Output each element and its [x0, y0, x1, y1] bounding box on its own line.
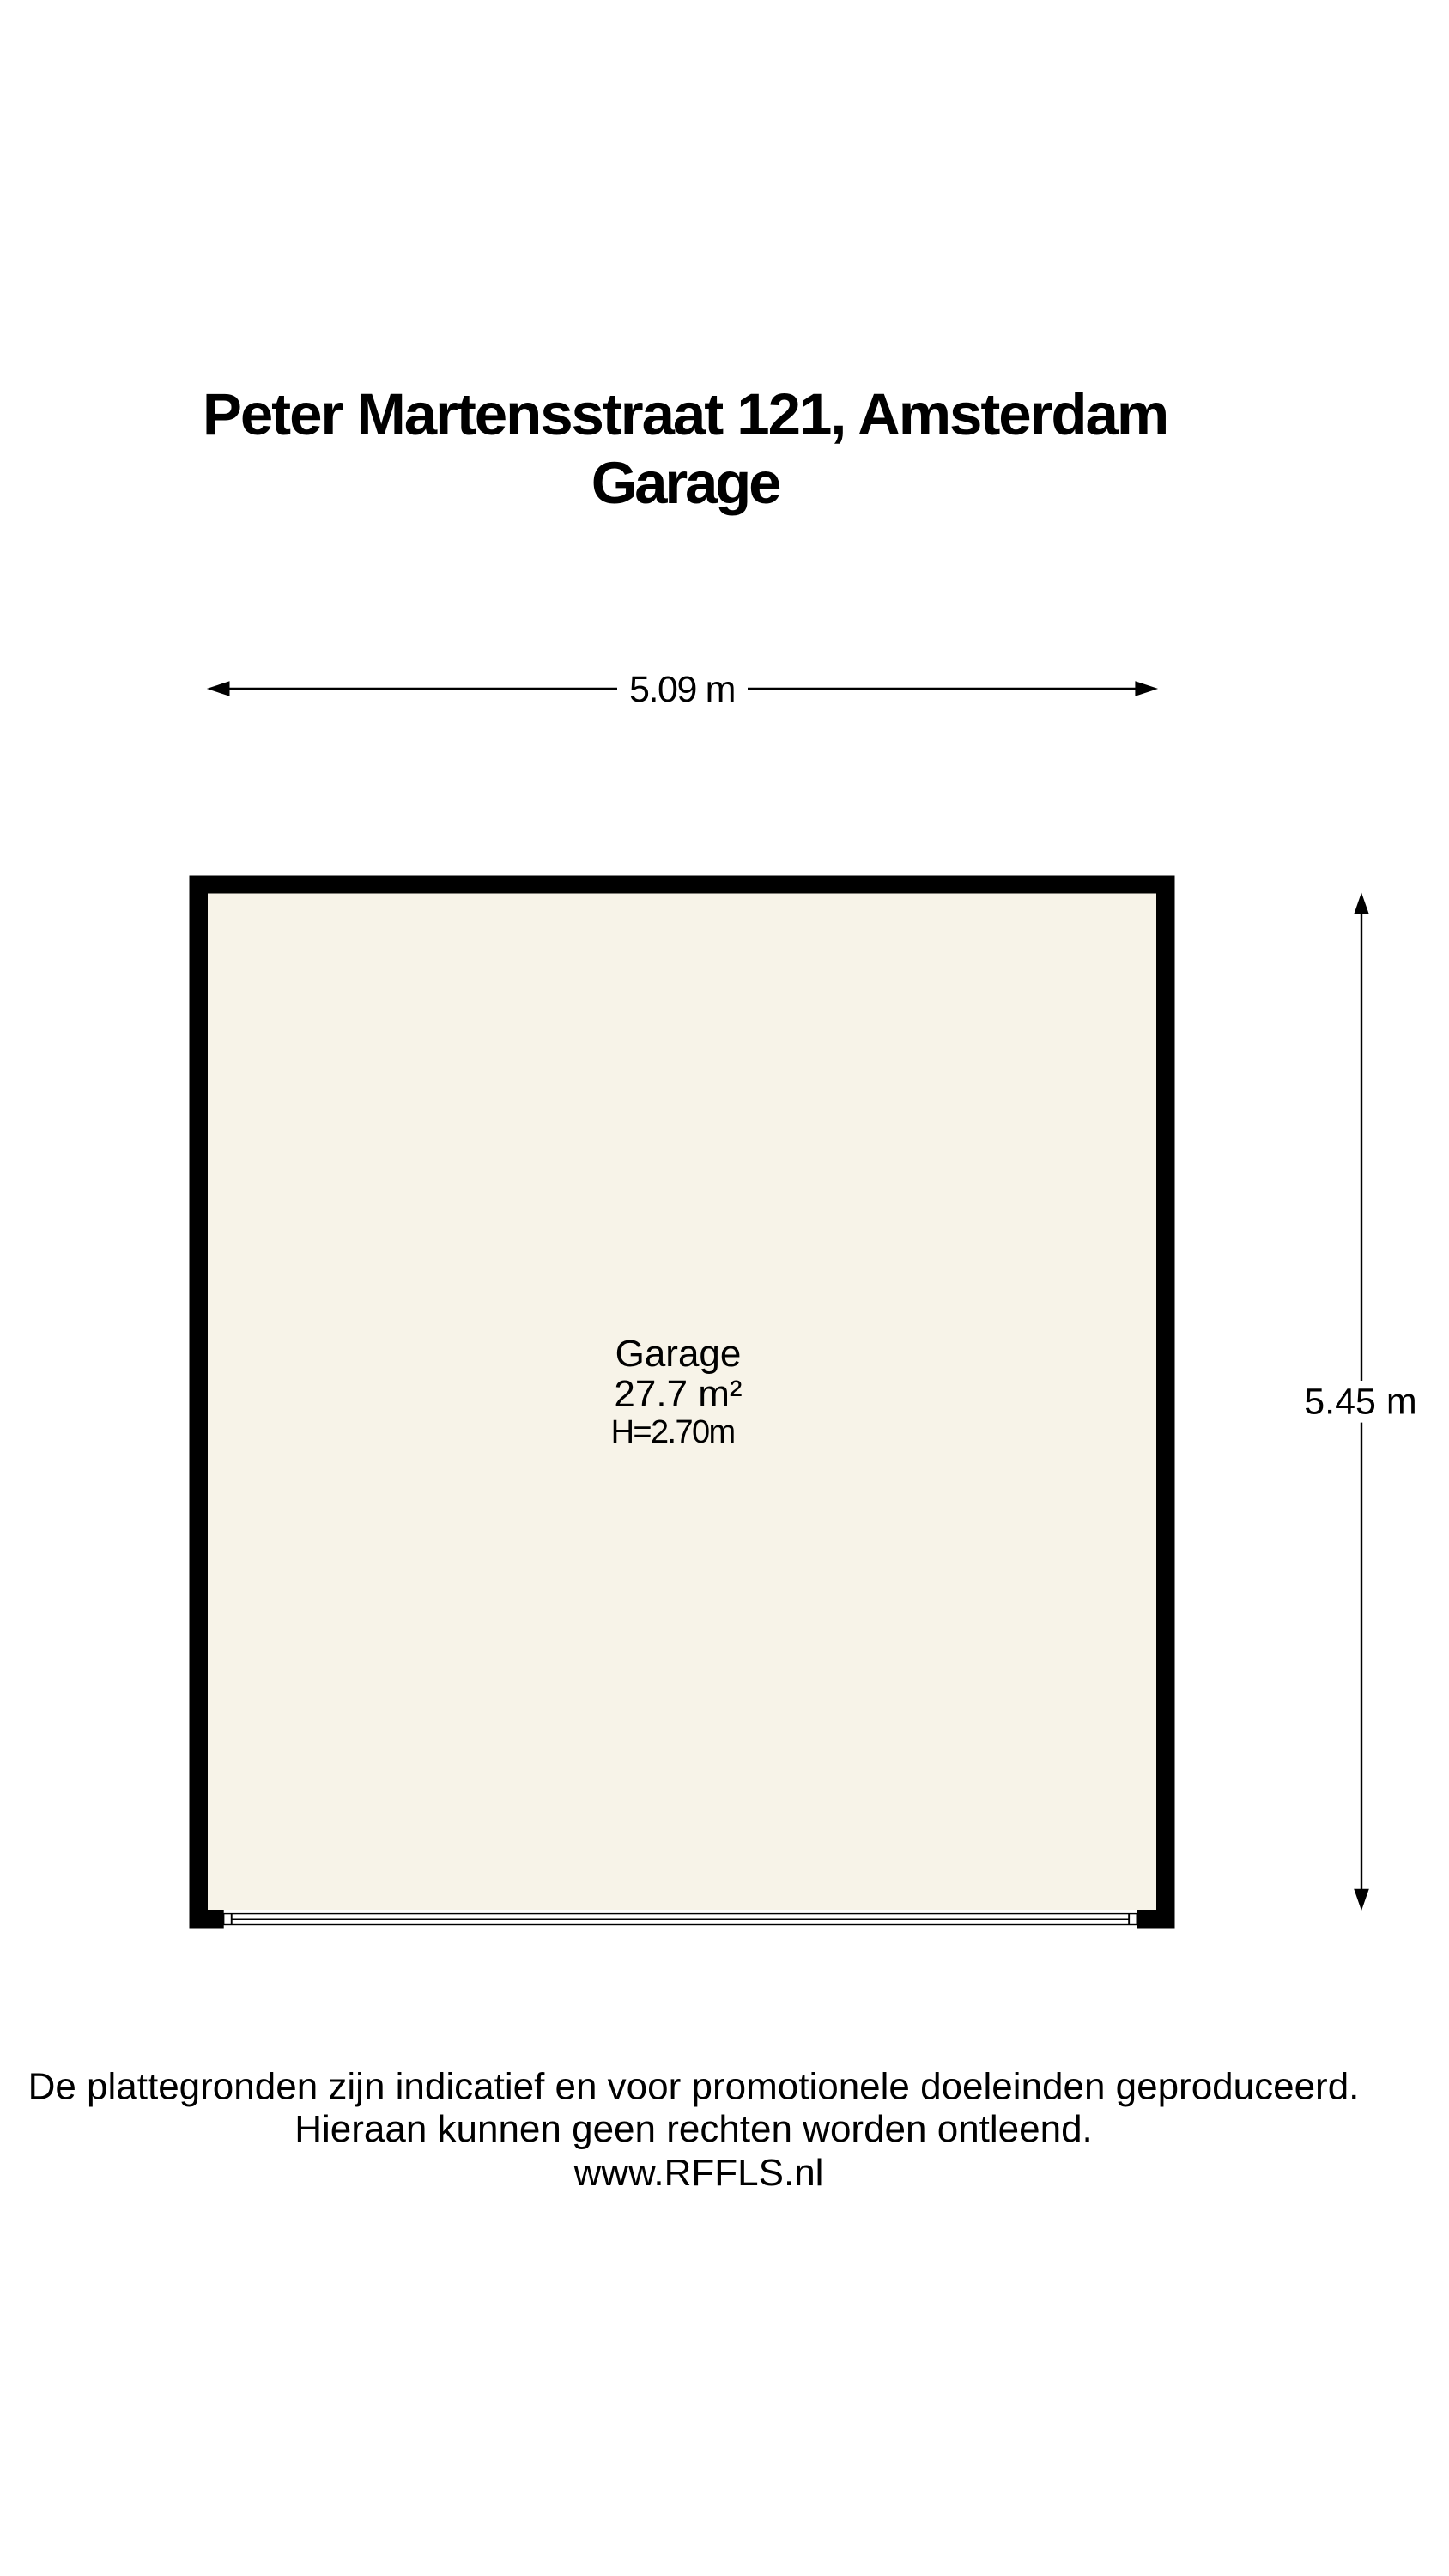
svg-text:27.7 m²: 27.7 m² [614, 1373, 742, 1415]
svg-text:Garage: Garage [591, 450, 780, 516]
svg-text:5.45 m: 5.45 m [1304, 1382, 1416, 1423]
svg-text:Peter Martensstraat 121, Amste: Peter Martensstraat 121, Amsterdam [203, 381, 1167, 447]
svg-text:De plattegronden zijn indicati: De plattegronden zijn indicatief en voor… [28, 2066, 1360, 2108]
svg-text:5.09 m: 5.09 m [629, 669, 735, 710]
svg-text:www.RFFLS.nl: www.RFFLS.nl [573, 2152, 824, 2194]
svg-text:Garage: Garage [615, 1333, 742, 1375]
svg-text:Hieraan kunnen geen rechten wo: Hieraan kunnen geen rechten worden ontle… [294, 2108, 1093, 2150]
svg-text:H=2.70m: H=2.70m [611, 1414, 735, 1450]
